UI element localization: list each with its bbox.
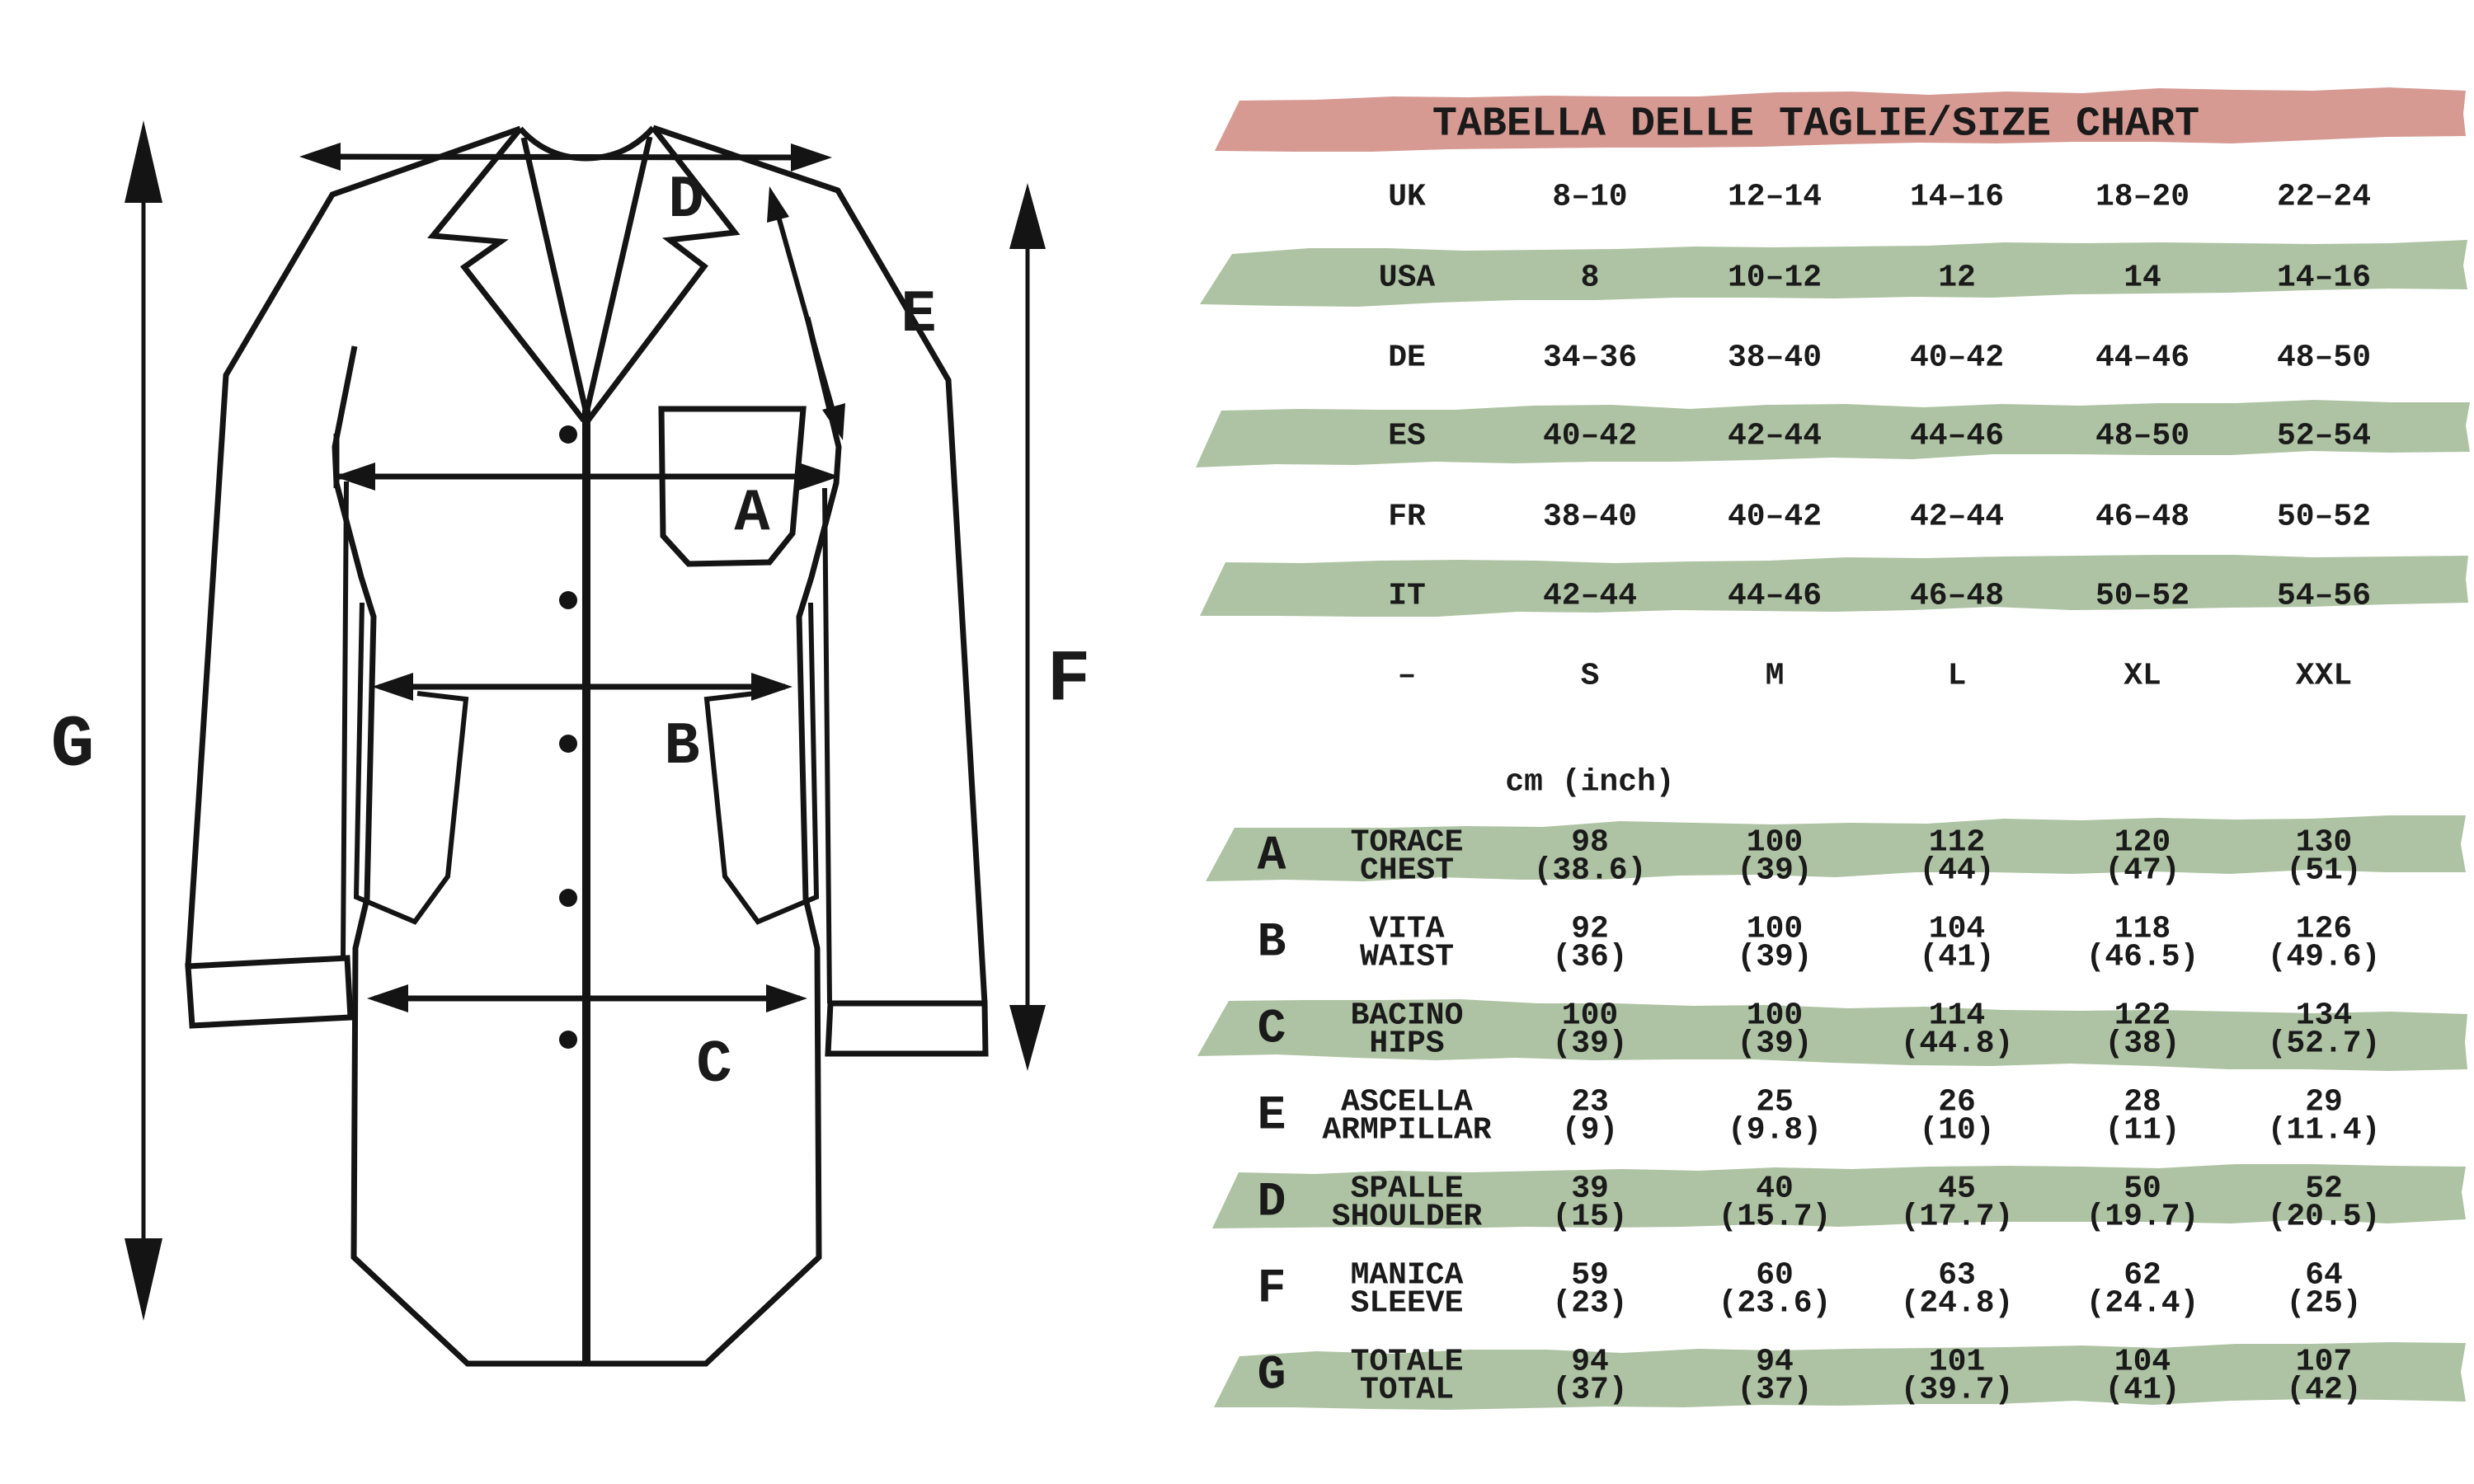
svg-text:(52.7): (52.7) <box>2268 1026 2381 1062</box>
svg-text:46–48: 46–48 <box>2095 500 2189 535</box>
svg-text:44–46: 44–46 <box>1728 579 1822 614</box>
svg-text:F: F <box>1258 1263 1286 1317</box>
svg-text:(10): (10) <box>1919 1113 1994 1148</box>
svg-text:(46.5): (46.5) <box>2086 940 2199 975</box>
svg-text:(41): (41) <box>1919 940 1994 975</box>
svg-text:44–46: 44–46 <box>1910 419 2004 454</box>
svg-text:UK: UK <box>1388 180 1426 215</box>
svg-text:(23): (23) <box>1552 1286 1627 1322</box>
svg-text:48–50: 48–50 <box>2277 340 2371 376</box>
svg-text:A: A <box>734 480 770 547</box>
svg-text:G: G <box>51 706 95 787</box>
svg-text:8–10: 8–10 <box>1552 180 1627 215</box>
svg-text:(11.4): (11.4) <box>2268 1113 2381 1148</box>
svg-text:(47): (47) <box>2105 853 2180 889</box>
svg-text:14–16: 14–16 <box>2277 261 2371 296</box>
svg-text:38–40: 38–40 <box>1728 340 1822 376</box>
svg-text:ARMPILLAR: ARMPILLAR <box>1322 1113 1491 1148</box>
svg-text:HIPS: HIPS <box>1369 1026 1444 1062</box>
svg-text:40–42: 40–42 <box>1728 500 1822 535</box>
svg-text:cm (inch): cm (inch) <box>1505 765 1674 801</box>
svg-text:(39): (39) <box>1737 940 1812 975</box>
svg-text:F: F <box>1047 641 1091 722</box>
svg-text:(9): (9) <box>1562 1113 1618 1148</box>
svg-text:C: C <box>1258 1003 1286 1057</box>
svg-text:SLEEVE: SLEEVE <box>1351 1286 1464 1322</box>
svg-text:(49.6): (49.6) <box>2268 940 2381 975</box>
svg-text:(25): (25) <box>2286 1286 2361 1322</box>
svg-text:12–14: 12–14 <box>1728 180 1822 215</box>
svg-text:(39.7): (39.7) <box>1901 1373 2014 1408</box>
svg-text:ES: ES <box>1388 419 1426 454</box>
svg-text:38–40: 38–40 <box>1543 500 1637 535</box>
svg-text:SHOULDER: SHOULDER <box>1332 1200 1483 1235</box>
svg-text:42–44: 42–44 <box>1543 579 1637 614</box>
svg-text:14: 14 <box>2124 261 2161 296</box>
svg-text:(41): (41) <box>2105 1373 2180 1408</box>
svg-text:(39): (39) <box>1552 1026 1627 1062</box>
svg-text:CHEST: CHEST <box>1360 853 1454 889</box>
svg-text:42–44: 42–44 <box>1728 419 1822 454</box>
svg-text:(15): (15) <box>1552 1200 1627 1235</box>
svg-text:XL: XL <box>2124 659 2161 694</box>
svg-text:E: E <box>901 281 936 349</box>
svg-text:44–46: 44–46 <box>2095 340 2189 376</box>
svg-text:E: E <box>1258 1090 1286 1144</box>
svg-text:(37): (37) <box>1737 1373 1812 1408</box>
svg-text:G: G <box>1258 1350 1286 1403</box>
svg-text:(38): (38) <box>2105 1026 2180 1062</box>
svg-text:USA: USA <box>1379 261 1436 296</box>
svg-text:(44): (44) <box>1919 853 1994 889</box>
svg-text:(17.7): (17.7) <box>1901 1200 2014 1235</box>
svg-text:FR: FR <box>1388 500 1426 535</box>
svg-text:A: A <box>1258 830 1286 884</box>
svg-text:42–44: 42–44 <box>1910 500 2004 535</box>
svg-text:S: S <box>1581 659 1600 694</box>
svg-text:(19.7): (19.7) <box>2086 1200 2199 1235</box>
svg-text:(39): (39) <box>1737 853 1812 889</box>
svg-text:22–24: 22–24 <box>2277 180 2371 215</box>
svg-text:TABELLA DELLE TAGLIE/SIZE CHAR: TABELLA DELLE TAGLIE/SIZE CHART <box>1432 101 2199 148</box>
svg-text:34–36: 34–36 <box>1543 340 1637 376</box>
svg-text:L: L <box>1948 659 1967 694</box>
svg-text:(38.6): (38.6) <box>1534 853 1647 889</box>
svg-text:10–12: 10–12 <box>1728 261 1822 296</box>
svg-text:12: 12 <box>1938 261 1976 296</box>
svg-text:(24.8): (24.8) <box>1901 1286 2014 1322</box>
svg-text:(44.8): (44.8) <box>1901 1026 2014 1062</box>
svg-text:–: – <box>1398 659 1417 694</box>
svg-text:52–54: 52–54 <box>2277 419 2371 454</box>
svg-text:(20.5): (20.5) <box>2268 1200 2381 1235</box>
svg-text:D: D <box>1258 1176 1286 1230</box>
svg-text:(23.6): (23.6) <box>1719 1286 1832 1322</box>
svg-text:(11): (11) <box>2105 1113 2180 1148</box>
svg-text:8: 8 <box>1581 261 1600 296</box>
svg-text:(24.4): (24.4) <box>2086 1286 2199 1322</box>
svg-text:B: B <box>1258 917 1286 970</box>
svg-text:14–16: 14–16 <box>1910 180 2004 215</box>
svg-text:(37): (37) <box>1552 1373 1627 1408</box>
svg-text:D: D <box>668 167 703 234</box>
svg-text:40–42: 40–42 <box>1910 340 2004 376</box>
svg-text:IT: IT <box>1388 579 1426 614</box>
svg-text:(36): (36) <box>1552 940 1627 975</box>
svg-text:DE: DE <box>1388 340 1426 376</box>
svg-text:TOTAL: TOTAL <box>1360 1373 1454 1408</box>
svg-text:50–52: 50–52 <box>2277 500 2371 535</box>
svg-text:(15.7): (15.7) <box>1719 1200 1832 1235</box>
svg-text:48–50: 48–50 <box>2095 419 2189 454</box>
svg-text:40–42: 40–42 <box>1543 419 1637 454</box>
svg-text:(51): (51) <box>2286 853 2361 889</box>
svg-text:M: M <box>1766 659 1785 694</box>
svg-text:46–48: 46–48 <box>1910 579 2004 614</box>
svg-text:C: C <box>696 1031 731 1099</box>
svg-text:(39): (39) <box>1737 1026 1812 1062</box>
svg-text:(42): (42) <box>2286 1373 2361 1408</box>
svg-text:18–20: 18–20 <box>2095 180 2189 215</box>
svg-text:B: B <box>664 713 699 781</box>
svg-text:54–56: 54–56 <box>2277 579 2371 614</box>
svg-text:XXL: XXL <box>2296 659 2352 694</box>
svg-text:(9.8): (9.8) <box>1728 1113 1822 1148</box>
svg-text:50–52: 50–52 <box>2095 579 2189 614</box>
svg-text:WAIST: WAIST <box>1360 940 1454 975</box>
